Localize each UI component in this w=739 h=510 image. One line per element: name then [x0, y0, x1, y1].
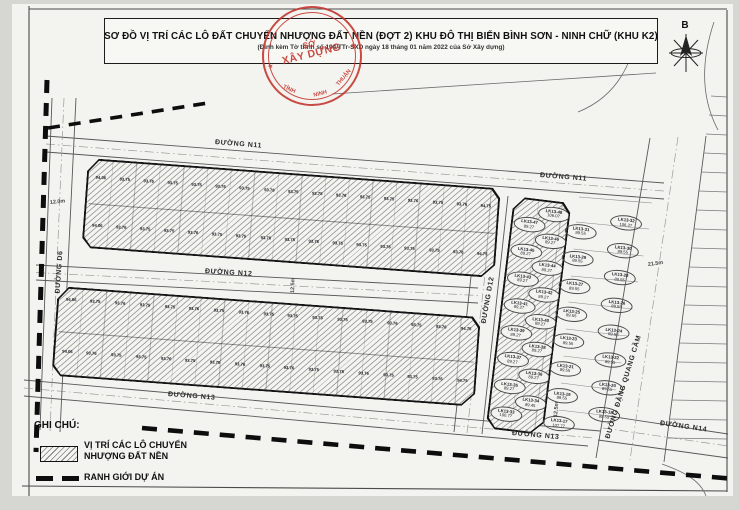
lot-area: 106.07: [547, 213, 560, 219]
lot-area-value: 93.76: [264, 187, 275, 193]
lot-marker: LK13-3589.27: [493, 377, 527, 396]
lot-area: 89.27: [531, 348, 542, 353]
lot-area-band: 94.0693.7693.7593.7593.7693.7593.7593.76…: [92, 222, 488, 256]
lot-area-value: 94.75: [480, 203, 491, 209]
lot-area: 89.27: [545, 240, 556, 245]
lot-area: 100.77: [499, 413, 512, 419]
legend-hatch-swatch: [40, 446, 78, 462]
lot-area-value: 93.76: [336, 192, 347, 198]
lot-area-value: 94.75: [477, 250, 488, 256]
lot-area: 89.55: [611, 305, 622, 310]
lot-area-value: 93.76: [235, 361, 246, 367]
lot-marker: LK13-32106.37: [609, 214, 642, 233]
lot-area: 89.55: [559, 368, 570, 373]
lot-area-value: 93.75: [284, 236, 295, 242]
lot-area: 89.55: [602, 387, 613, 392]
lot-marker: LK13-4189.27: [502, 296, 536, 315]
lot-area-value: 93.75: [356, 242, 367, 248]
lot-area-value: 93.75: [240, 185, 251, 191]
lot-area-value: 93.75: [362, 318, 373, 324]
lot-area-value: 93.76: [456, 201, 467, 207]
lot-area: 89.55: [614, 277, 625, 282]
lot-area-value: 93.76: [143, 178, 154, 184]
lot-area-value: 93.75: [167, 180, 178, 186]
lot-area: 89.55: [572, 258, 583, 263]
lot-area-value: 93.76: [358, 370, 369, 376]
lot-area-value: 93.76: [86, 350, 97, 356]
lot-area-value: 93.75: [259, 363, 270, 369]
lot-area-value: 93.75: [332, 240, 343, 246]
lot-area-value: 93.76: [408, 197, 419, 203]
lot-area: 89.55: [575, 231, 586, 236]
lot-area: 89.27: [507, 359, 518, 364]
lot-area-value: 93.76: [380, 243, 391, 249]
lot-area: 106.37: [619, 222, 632, 228]
lot-area-value: 93.75: [119, 176, 130, 182]
lot-area-value: 93.75: [185, 357, 196, 363]
lot-area: 89.55: [617, 250, 628, 255]
lot-area-value: 93.75: [263, 311, 274, 317]
lot-area: 89.27: [541, 267, 552, 272]
lot-area: 89.27: [517, 278, 528, 283]
lot-area-value: 93.75: [411, 322, 422, 328]
lot-area-value: 93.75: [309, 366, 320, 372]
lot-area-value: 93.75: [191, 181, 202, 187]
lot-area-value: 93.76: [284, 364, 295, 370]
legend-boundary-symbol: [36, 476, 82, 481]
dim-label-n12-width: 12.5m: [290, 278, 297, 293]
scan-margin-bottom: [0, 496, 739, 510]
lot-area-value: 94.06: [62, 348, 73, 354]
lot-marker: LK13-2389.55: [552, 332, 585, 351]
lot-area: 89.27: [535, 321, 546, 326]
lot-marker: LK13-1989.55: [545, 387, 578, 406]
lot-area-value: 93.76: [238, 309, 249, 315]
lot-marker: LK13-2989.55: [561, 250, 594, 269]
lot-marker: LK13-3089.55: [606, 241, 639, 260]
lot-area-value: 94.75: [461, 325, 472, 331]
lot-marker: LK13-2489.55: [597, 323, 630, 342]
lot-area-value: 93.75: [429, 247, 440, 253]
lot-area-value: 93.76: [189, 305, 200, 311]
lot-area: 107.77: [552, 423, 565, 429]
lot-marker: LK13-3989.27: [499, 323, 533, 342]
lot-area: 89.55: [598, 414, 609, 419]
lot-area-value: 93.75: [236, 233, 247, 239]
lot-area-value: 93.76: [308, 238, 319, 244]
lot-area-value: 93.75: [212, 231, 223, 237]
lot-area-value: 93.75: [140, 302, 151, 308]
lot-area-value: 93.75: [432, 199, 443, 205]
lot-marker: LK13-2889.55: [603, 268, 636, 287]
lot-marker: LK13-3189.55: [564, 222, 597, 241]
legend-item1-label: VỊ TRÍ CÁC LÔ CHUYỂN NHƯỢNG ĐẤT NỀN: [84, 440, 187, 462]
lot-area-value: 93.75: [164, 304, 175, 310]
lot-marker: LK13-2189.55: [548, 359, 581, 378]
lot-area: 89.55: [566, 313, 577, 318]
lot-area-band: 94.0693.7693.7593.7593.7693.7593.7593.76…: [62, 348, 468, 383]
lot-area-value: 93.75: [384, 195, 395, 201]
lot-area-value: 93.75: [405, 245, 416, 251]
lot-area-value: 93.75: [337, 316, 348, 322]
lot-area-value: 93.75: [164, 227, 175, 233]
lot-area-value: 93.75: [214, 307, 225, 313]
lot-marker: LK13-4589.27: [509, 242, 543, 261]
lot-area-value: 93.76: [188, 229, 199, 235]
lot-area-value: 93.75: [333, 368, 344, 374]
lot-area-value: 93.75: [90, 298, 101, 304]
lot-area-value: 93.76: [116, 224, 127, 230]
lot-area: 89.55: [563, 341, 574, 346]
lot-area-value: 93.75: [288, 313, 299, 319]
lot-area-value: 93.76: [432, 375, 443, 381]
lot-area-value: 93.75: [360, 194, 371, 200]
lot-marker: LK13-4389.27: [506, 269, 540, 288]
scan-margin-left: [0, 0, 12, 510]
lot-area: 89.55: [569, 286, 580, 291]
lot-area: 89.55: [605, 359, 616, 364]
lot-area: 89.27: [504, 386, 515, 391]
lot-area-value: 94.06: [92, 222, 103, 228]
lot-area-value: 94.75: [457, 377, 468, 383]
legend: GHI CHÚ: VỊ TRÍ CÁC LÔ CHUYỂN NHƯỢNG ĐẤT…: [34, 420, 264, 431]
lot-area: 89.27: [528, 375, 539, 380]
lot-marker: LK13-33100.77: [489, 404, 523, 423]
legend-item2-label: RANH GIỚI DỰ ÁN: [84, 472, 164, 482]
scan-margin-right: [733, 0, 739, 510]
lot-area-value: 93.75: [136, 354, 147, 360]
lot-area: 89.27: [514, 305, 525, 310]
lot-area-value: 93.76: [215, 183, 226, 189]
lot-area-value: 93.75: [210, 359, 221, 365]
lot-area-value: 93.75: [140, 226, 151, 232]
lot-area-value: 93.76: [453, 249, 464, 255]
legend-heading: GHI CHÚ:: [34, 420, 264, 431]
lot-area-value: 93.76: [161, 355, 172, 361]
lot-area: 89.27: [523, 224, 534, 229]
lot-area-value: 94.06: [66, 296, 77, 302]
lot-area: 89.27: [510, 332, 521, 337]
site-plan-page: { "title": { "line1": "SƠ ĐỒ VỊ TRÍ CÁC …: [0, 0, 739, 510]
lot-area: 89.55: [608, 332, 619, 337]
lot-marker: LK13-2789.55: [558, 277, 591, 296]
lot-area-value: 93.75: [408, 374, 419, 380]
lot-area-value: 93.75: [312, 190, 323, 196]
page-title: SƠ ĐỒ VỊ TRÍ CÁC LÔ ĐẤT CHUYỂN NHƯỢNG ĐẤ…: [104, 31, 658, 42]
lot-marker: LK13-2589.55: [555, 305, 588, 324]
lot-area: 89.45: [525, 402, 536, 407]
lot-area-value: 93.76: [387, 320, 398, 326]
lot-area-value: 93.75: [288, 188, 299, 194]
lot-area-value: 94.06: [95, 174, 106, 180]
north-compass: B: [664, 20, 706, 72]
title-box: SƠ ĐỒ VỊ TRÍ CÁC LÔ ĐẤT CHUYỂN NHƯỢNG ĐẤ…: [104, 18, 658, 64]
lot-area: 89.27: [520, 251, 531, 256]
lot-area-value: 93.76: [115, 300, 126, 306]
lot-marker: LK13-2689.55: [600, 296, 633, 315]
lot-area-value: 93.76: [260, 235, 271, 241]
lot-area-value: 93.76: [313, 314, 324, 320]
lot-area-value: 93.75: [111, 352, 122, 358]
lot-area-value: 93.75: [383, 372, 394, 378]
north-label: B: [664, 20, 706, 31]
lot-area: 89.55: [556, 396, 567, 401]
lot-area-value: 93.76: [436, 323, 447, 329]
lot-marker: LK13-2289.55: [594, 351, 627, 370]
scan-margin-top: [0, 0, 739, 4]
lot-area: 89.27: [538, 294, 549, 299]
